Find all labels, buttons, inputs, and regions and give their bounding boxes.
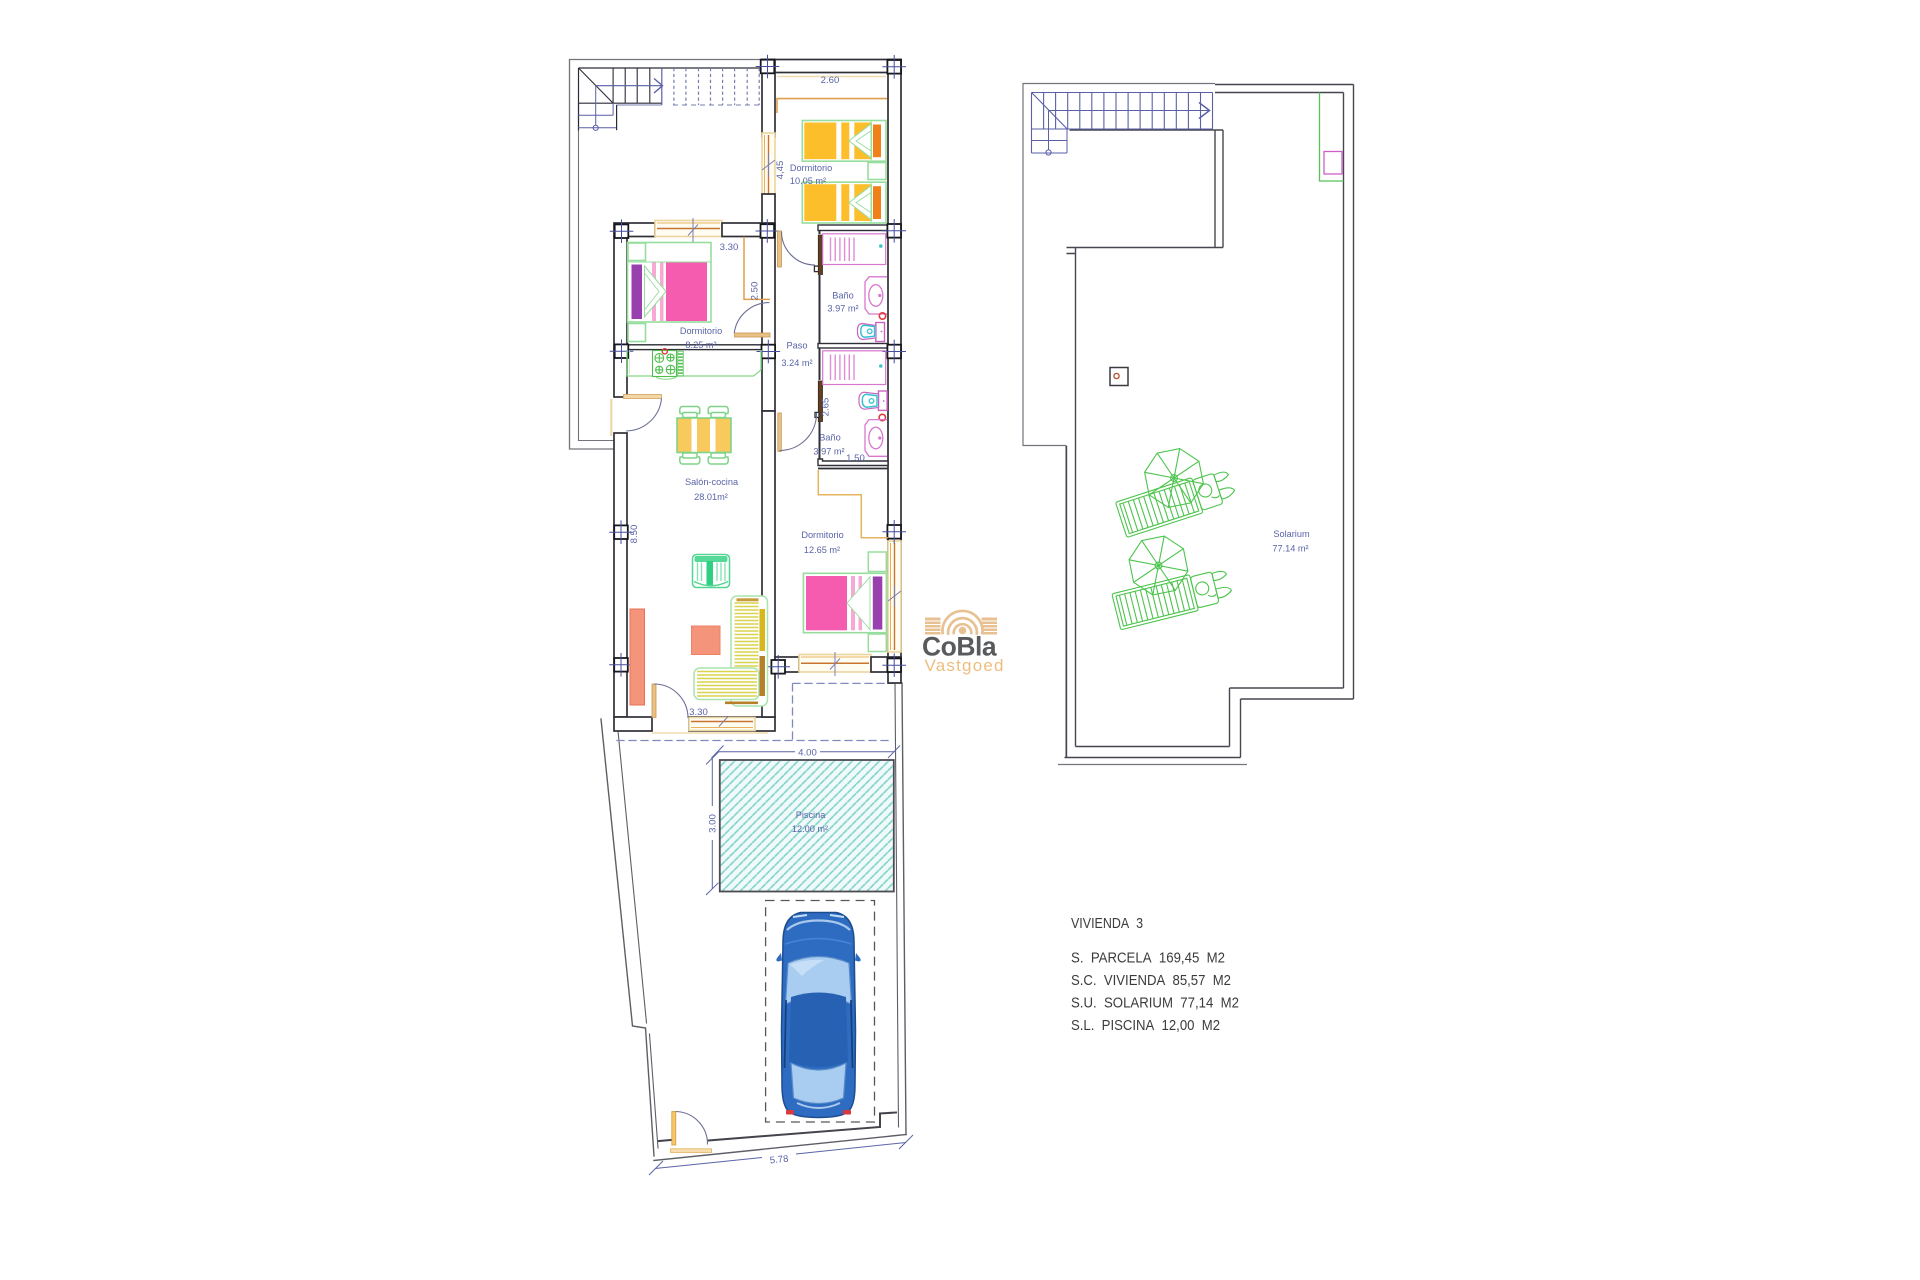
svg-text:4,45: 4,45	[775, 161, 786, 180]
svg-text:10.05 m²: 10.05 m²	[790, 176, 826, 186]
svg-text:Vastgoed: Vastgoed	[925, 656, 1005, 675]
svg-text:8.25 m²: 8.25 m²	[685, 340, 716, 350]
svg-text:S.L. PISCINA 12,00 M2: S.L. PISCINA 12,00 M2	[1071, 1017, 1220, 1034]
svg-text:77.14 m²: 77.14 m²	[1272, 544, 1308, 554]
svg-text:12.00 m²: 12.00 m²	[792, 824, 828, 834]
svg-text:Dormitorio: Dormitorio	[680, 326, 722, 336]
svg-text:2.60: 2.60	[821, 75, 840, 86]
svg-text:3.30: 3.30	[720, 242, 739, 253]
svg-text:12.65 m²: 12.65 m²	[804, 545, 840, 555]
svg-text:Salón-cocina: Salón-cocina	[685, 477, 739, 487]
svg-text:2.50: 2.50	[750, 282, 761, 301]
svg-text:2.65: 2.65	[821, 398, 832, 417]
svg-text:Dormitorio: Dormitorio	[790, 163, 832, 173]
svg-text:8.50: 8.50	[629, 525, 640, 544]
svg-text:S.C. VIVIENDA 85,57 M2: S.C. VIVIENDA 85,57 M2	[1071, 972, 1231, 989]
svg-text:Dormitorio: Dormitorio	[801, 530, 843, 540]
svg-text:3.97 m²: 3.97 m²	[813, 447, 844, 457]
svg-text:4.00: 4.00	[798, 748, 817, 759]
svg-text:3.97 m²: 3.97 m²	[827, 304, 858, 314]
svg-text:3.00: 3.00	[707, 814, 718, 833]
svg-text:S.U. SOLARIUM 77,14 M2: S.U. SOLARIUM 77,14 M2	[1071, 995, 1239, 1012]
svg-text:Solarium: Solarium	[1273, 529, 1310, 539]
svg-text:Baño: Baño	[819, 433, 840, 443]
svg-text:3.30: 3.30	[689, 707, 708, 718]
svg-text:Paso: Paso	[787, 341, 808, 351]
svg-text:28.01m²: 28.01m²	[694, 492, 728, 502]
svg-text:3.24 m²: 3.24 m²	[781, 358, 812, 368]
svg-text:VIVIENDA 3: VIVIENDA 3	[1071, 915, 1143, 932]
svg-text:1.50: 1.50	[846, 453, 865, 464]
svg-text:S. PARCELA 169,45 M2: S. PARCELA 169,45 M2	[1071, 950, 1225, 967]
svg-text:5.78: 5.78	[769, 1154, 789, 1167]
svg-text:Baño: Baño	[832, 291, 853, 301]
svg-text:Piscina: Piscina	[796, 810, 827, 820]
